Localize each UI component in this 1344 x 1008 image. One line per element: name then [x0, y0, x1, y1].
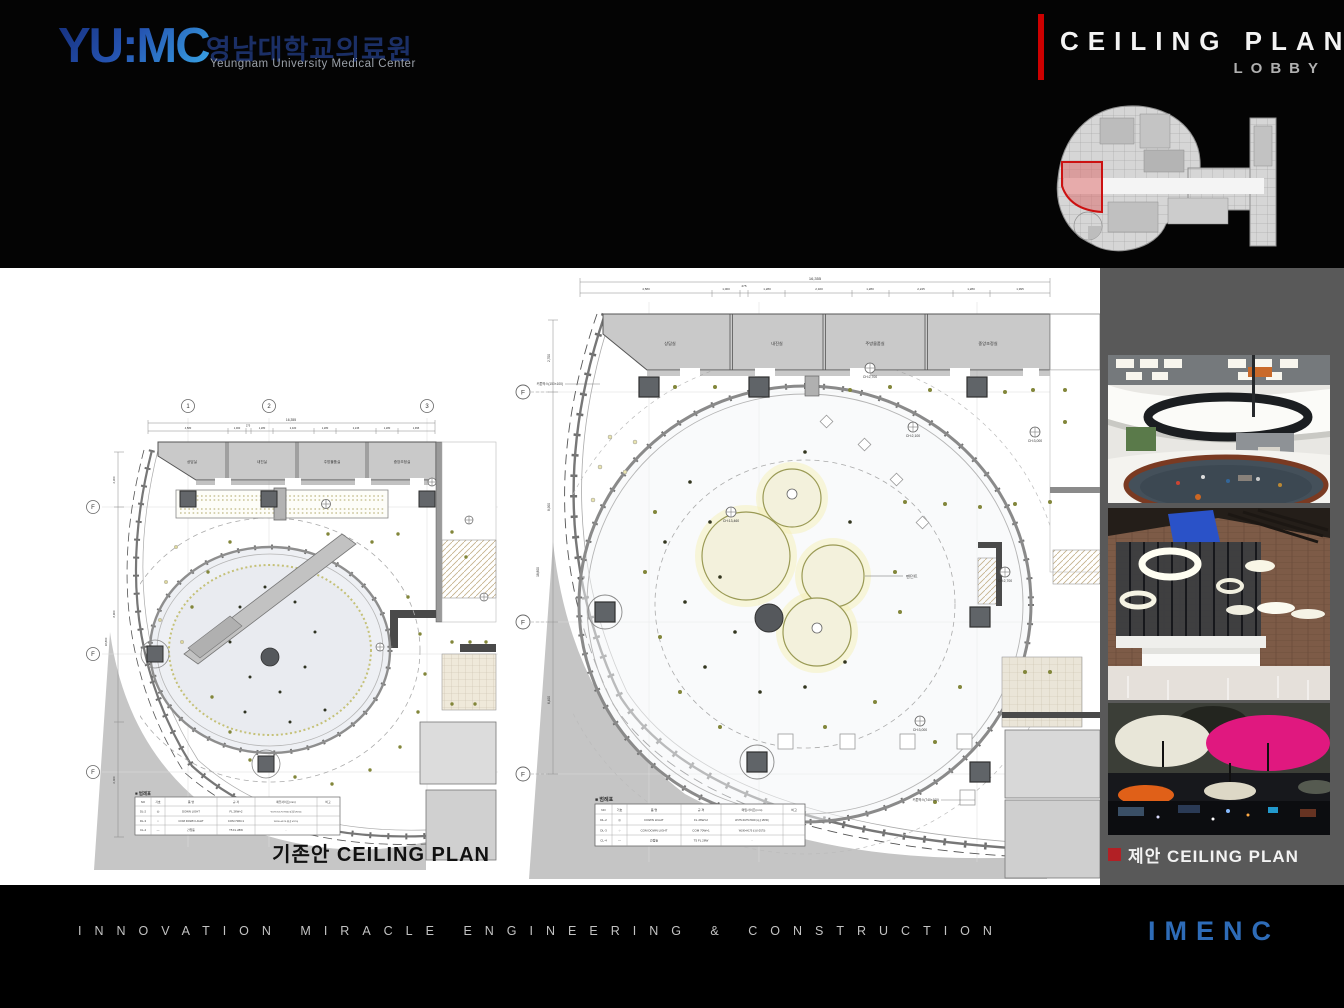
ch-label: CH:3,000	[913, 728, 927, 732]
footer-brand-imenc: IMENC	[1148, 916, 1280, 947]
dim: 18,800	[536, 567, 540, 577]
dim: 1,280	[763, 287, 771, 291]
room-label: 상담실	[187, 459, 197, 464]
dim: 1,280	[967, 287, 975, 291]
dim: 1,280	[866, 287, 874, 291]
dim: 1,280	[322, 426, 329, 430]
legend-c: 간접등	[187, 828, 195, 832]
ch-label: CH:3,000	[1028, 439, 1042, 443]
legend-h: NO	[601, 808, 606, 812]
legend-h: 비고	[791, 807, 797, 812]
existing-ceiling-plan-drawing: 상담실 내진실 주방물품실 중앙조정실	[80, 392, 500, 872]
legend-c: —	[157, 828, 160, 832]
grid-bubbles-left: F F F	[87, 501, 100, 779]
dim: 2,700	[547, 354, 551, 362]
header: YU:MC 영남대학교의료원 Yeungnam University Medic…	[0, 0, 1344, 268]
ch-label: CH:2,700	[863, 375, 877, 379]
room-label: 내진실	[257, 459, 267, 464]
legend-h: 매입사이즈(mm)	[742, 807, 763, 812]
legend-c: T5 FL 28W	[229, 828, 243, 832]
note: 커튼박스(740×100)	[913, 797, 939, 802]
ch-label: CH:2,100	[906, 434, 920, 438]
legend-c: COM 70W×1	[228, 819, 245, 823]
dim: 4,580	[642, 287, 650, 291]
pendant-label: 팬던트	[906, 573, 918, 579]
grid-bubbles-top: 1 2 3	[182, 400, 434, 413]
legend-c: COM DOWN LIGHT	[178, 819, 203, 823]
legend-c: DL-3	[140, 819, 147, 823]
slide: YU:MC 영남대학교의료원 Yeungnam University Medic…	[0, 0, 1344, 1008]
dim: 275	[246, 424, 251, 428]
legend-c: DL-2	[140, 810, 147, 814]
legend-h: 비고	[325, 800, 331, 804]
legend-h: 규 격	[698, 807, 705, 812]
legend-c: DL-2	[600, 818, 607, 822]
room-label: 내진실	[771, 340, 783, 347]
grid-bubble-label: F	[91, 770, 95, 776]
reference-photo-color-discs	[1108, 703, 1330, 835]
top-dimensions: 16,355 4,580 1,000 275 1,280 2,320 1,280…	[580, 276, 1050, 297]
key-plan-thumbnail	[1048, 98, 1296, 266]
legend-c: DOWN LIGHT	[182, 810, 200, 814]
page-title: CEILING PLAN	[1060, 26, 1330, 57]
legend-c: ◎	[618, 818, 621, 822]
existing-plan-caption: 기존안 CEILING PLAN	[252, 838, 490, 867]
dim: 2,320	[290, 426, 297, 430]
legend-c: FL 26W×2	[694, 818, 708, 822]
dim: 6,400	[547, 696, 551, 704]
legend-c: CL-4	[600, 839, 607, 843]
legend-c: T5 FL 28W	[694, 839, 709, 843]
legend-title: ■ 범례표	[135, 790, 151, 797]
legend-h: 기호	[617, 807, 623, 812]
legend-c: ○	[619, 829, 621, 833]
dim: 8,900	[112, 610, 116, 617]
grid-bubble-label: F	[521, 390, 525, 397]
dim: 1,995	[413, 426, 420, 430]
yumc-logo: YU:MC	[58, 22, 209, 71]
grid-bubble-label: F	[521, 772, 525, 779]
room-label: 상담실	[664, 340, 676, 346]
legend-h: 규 격	[233, 800, 239, 804]
grid-bubble-label: F	[91, 652, 95, 658]
legend-c: W190×H175 (타공 Ø170)	[739, 829, 766, 833]
dim-total: 16,355	[809, 276, 822, 281]
dim: 1,000	[234, 426, 241, 430]
legend-title: ■ 범례표	[595, 796, 614, 803]
title-accent-bar	[1038, 14, 1044, 80]
right-rooms	[390, 442, 496, 860]
dim: 4,580	[185, 426, 192, 430]
proposed-plan-caption-text: 제안 CEILING PLAN	[1128, 842, 1299, 867]
dim: 18,800	[104, 637, 108, 646]
dim: 1,280	[259, 426, 266, 430]
legend-c: 간접등	[650, 838, 659, 843]
legend-table: ■ 범례표 NO 기호 품 명 규 격 매입사이즈(mm) 비고 DL-2 ◎ …	[135, 790, 340, 835]
ch-label: CH:13,460	[723, 519, 739, 523]
grid-bubble-label: F	[521, 620, 525, 627]
note: 커튼박스(150×100)	[537, 381, 563, 386]
dim-total: 16,355	[286, 418, 296, 422]
dim: 2,245	[353, 426, 360, 430]
canopy-light	[176, 488, 388, 520]
top-dimensions: 16,355 4,580 1,000 275 1,280 2,320 1,280…	[148, 400, 435, 435]
legend-h: 품 명	[188, 800, 194, 804]
legend-c: ○	[157, 819, 159, 823]
legend-c: CL-4	[140, 828, 147, 832]
ch-label: CH:2,700	[998, 579, 1012, 583]
proposed-ceiling-plan-drawing: 상담실 내진실 주방물품실 중앙조정실	[505, 272, 1100, 880]
legend-c: DL-3	[600, 829, 607, 833]
legend-c: —	[618, 839, 621, 843]
room-label: 주방물품실	[865, 340, 884, 347]
reference-photo-ring-lights	[1108, 508, 1330, 700]
legend-c: COM DOWN LIGHT	[641, 829, 668, 833]
red-square-bullet-icon	[1108, 848, 1121, 861]
footer-tagline: INNOVATION MIRACLE ENGINEERING & CONSTRU…	[78, 924, 1005, 938]
legend-h: 매입사이즈(mm)	[276, 800, 295, 804]
room-label: 주방물품실	[324, 459, 341, 464]
grid-bubble-label: F	[91, 505, 95, 511]
dim: 1,000	[722, 287, 730, 291]
legend-c: FL 26W×2	[230, 810, 243, 814]
legend-c: W175×D175×H200 (타공 Ø150)	[735, 818, 769, 822]
footer: INNOVATION MIRACLE ENGINEERING & CONSTRU…	[0, 885, 1344, 1008]
dim: 275	[741, 284, 746, 288]
reference-photo-atrium	[1108, 355, 1330, 503]
proposed-plan-caption: 제안 CEILING PLAN	[1108, 842, 1338, 867]
dim: 8,900	[547, 503, 551, 511]
page-subtitle: LOBBY	[1060, 60, 1326, 77]
room-label: 중앙조정실	[394, 459, 411, 464]
logo-english: Yeungnam University Medical Center	[210, 58, 416, 70]
legend-c: COM 70W×1	[692, 829, 710, 833]
right-rooms	[978, 314, 1100, 878]
dim: 6,400	[112, 776, 116, 783]
dim: 2,320	[815, 287, 823, 291]
top-rooms: 상담실 내진실 주방물품실 중앙조정실	[158, 442, 436, 485]
dim: 1,995	[1016, 287, 1024, 291]
legend-c: DOWN LIGHT	[644, 818, 663, 822]
room-label: 중앙조정실	[978, 340, 997, 346]
dim: 1,280	[384, 426, 391, 430]
dim: 2,300	[112, 476, 116, 483]
dim: 2,245	[917, 287, 925, 291]
legend-h: 품 명	[651, 807, 658, 812]
legend-h: 기호	[155, 800, 161, 804]
